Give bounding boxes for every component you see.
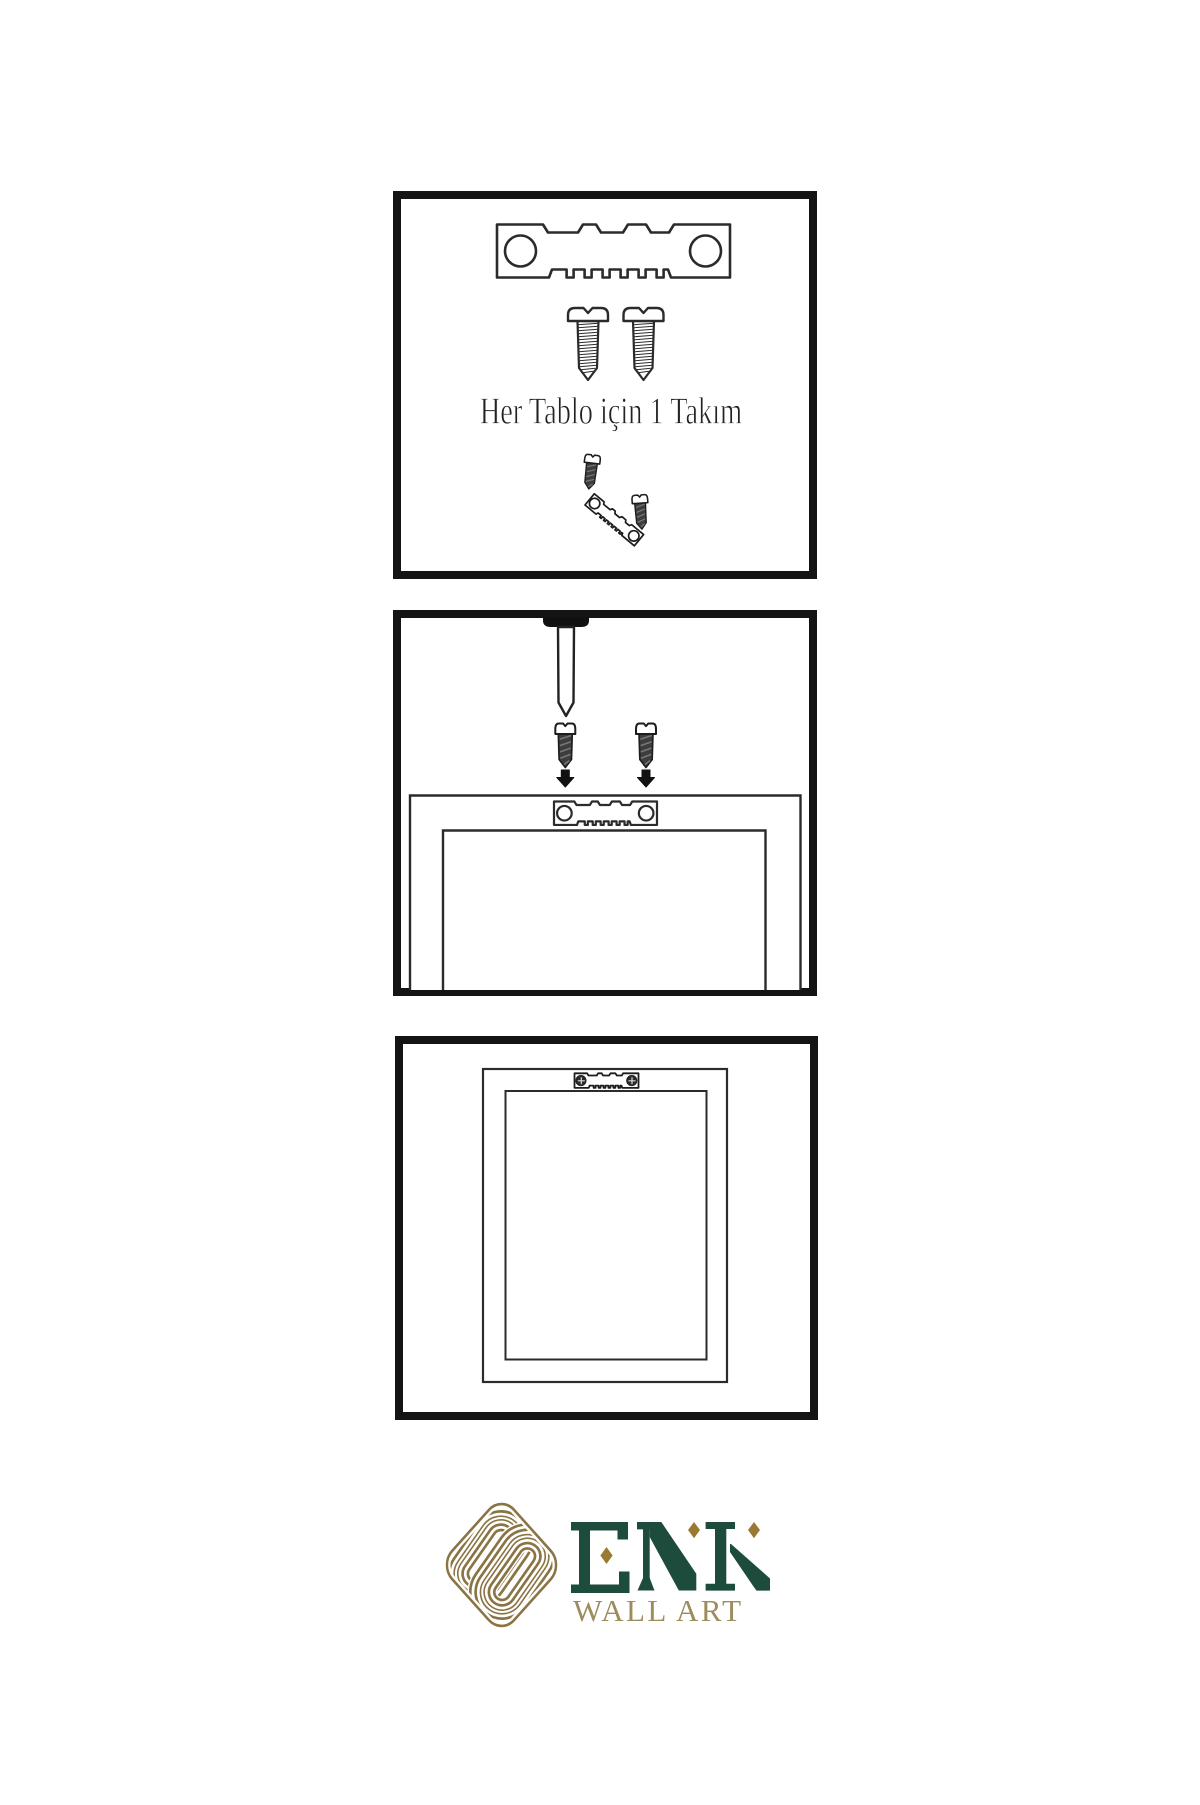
svg-text:Her Tablo için 1 Takım: Her Tablo için 1 Takım	[480, 391, 742, 433]
svg-text:WALL ART: WALL ART	[573, 1593, 741, 1628]
